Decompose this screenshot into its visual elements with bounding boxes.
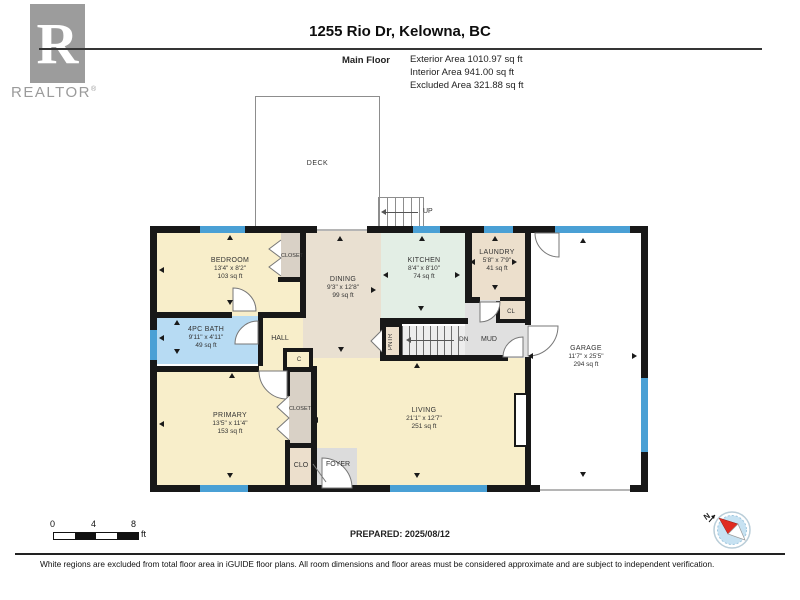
room-label-foyer: FOYER xyxy=(326,461,350,469)
disclaimer-text: White regions are excluded from total fl… xyxy=(40,559,714,569)
room-label-clo: CLO xyxy=(294,462,308,470)
stairs-down-label: DN xyxy=(459,336,468,343)
wall-arrow xyxy=(492,285,498,290)
room-label-laundry: LAUNDRY 5'8" x 7'9" 41 sq ft xyxy=(479,249,514,273)
wall-arrow xyxy=(383,272,388,278)
door-symbols xyxy=(0,0,800,600)
wall-arrow xyxy=(470,259,475,265)
scale-tick-4: 4 xyxy=(91,519,96,529)
scale-tick-8: 8 xyxy=(131,519,136,529)
wall-arrow xyxy=(159,335,164,341)
wall-arrow xyxy=(227,473,233,478)
room-label-mud: MUD xyxy=(481,336,497,344)
wall-arrow xyxy=(528,353,533,359)
wall-arrow xyxy=(227,300,233,305)
wall-arrow xyxy=(632,353,637,359)
wall-arrow xyxy=(580,472,586,477)
prepared-date: PREPARED: 2025/08/12 xyxy=(0,529,800,539)
wall-arrow xyxy=(159,421,164,427)
scale-tick-0: 0 xyxy=(50,519,55,529)
room-label-living: LIVING 21'1" x 12'7" 251 sq ft xyxy=(406,407,442,431)
room-label-garage: GARAGE 11'7" x 25'5" 294 sq ft xyxy=(568,345,603,369)
wall-arrow xyxy=(174,349,180,354)
wall-arrow xyxy=(580,238,586,243)
footer-divider xyxy=(15,553,785,555)
wall-arrow xyxy=(337,236,343,241)
room-label-primary-closet: CLOSET xyxy=(289,405,311,413)
room-label-bedroom-closet: CLOSET xyxy=(281,252,303,260)
wall-arrow xyxy=(418,306,424,311)
compass-icon xyxy=(702,506,754,552)
wall-arrow xyxy=(419,236,425,241)
wall-arrow xyxy=(174,320,180,325)
wall-arrow xyxy=(229,373,235,378)
wall-arrow xyxy=(159,267,164,273)
room-label-hall: HALL xyxy=(271,335,289,343)
wall-arrow xyxy=(414,363,420,368)
wall-arrow xyxy=(492,236,498,241)
room-label-kitchen: KITCHEN 8'4" x 8'10" 74 sq ft xyxy=(408,257,441,281)
room-label-c-closet: C xyxy=(297,356,301,364)
wall-arrow xyxy=(371,287,376,293)
floor-plan-page: R REALTOR® 1255 Rio Dr, Kelowna, BC Main… xyxy=(0,0,800,600)
room-label-cl: CL xyxy=(507,308,515,316)
wall-arrow xyxy=(227,235,233,240)
wall-arrow xyxy=(338,347,344,352)
wall-arrow xyxy=(414,473,420,478)
room-label-dining: DINING 9'3" x 12'8" 99 sq ft xyxy=(327,276,359,300)
room-label-bath: 4PC BATH 9'11" x 4'11" 49 sq ft xyxy=(188,326,224,350)
wall-arrow xyxy=(313,417,318,423)
room-label-pntr: PNTR xyxy=(388,328,394,356)
wall-arrow xyxy=(455,272,460,278)
room-label-bedroom: BEDROOM 13'4" x 8'2" 103 sq ft xyxy=(211,257,249,281)
room-label-primary: PRIMARY 13'5" x 11'4" 153 sq ft xyxy=(212,412,247,436)
